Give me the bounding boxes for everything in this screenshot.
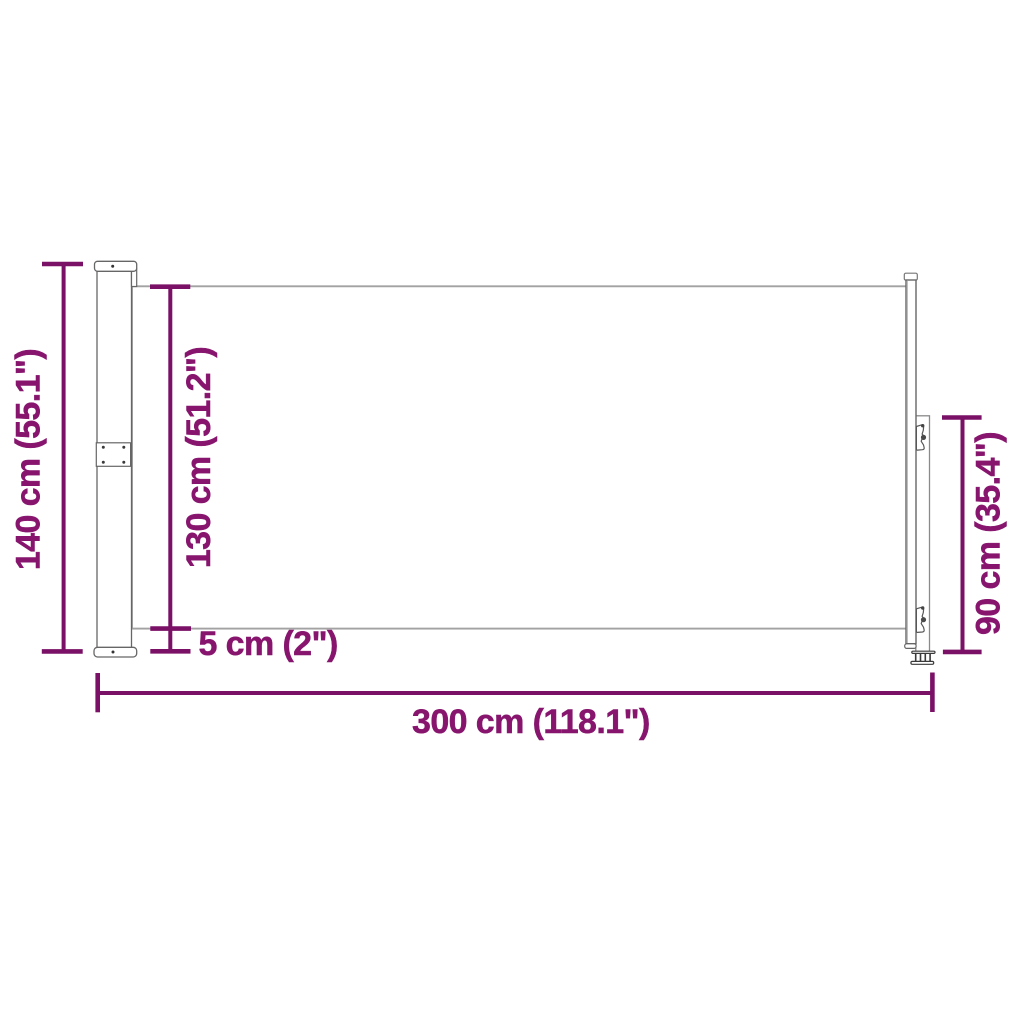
svg-text:130 cm (51.2"): 130 cm (51.2") <box>180 347 218 568</box>
svg-text:300 cm (118.1"): 300 cm (118.1") <box>412 703 650 741</box>
svg-text:90 cm (35.4"): 90 cm (35.4") <box>970 432 1008 635</box>
svg-text:5 cm (2"): 5 cm (2") <box>199 625 338 663</box>
svg-text:140 cm (55.1"): 140 cm (55.1") <box>10 349 48 570</box>
